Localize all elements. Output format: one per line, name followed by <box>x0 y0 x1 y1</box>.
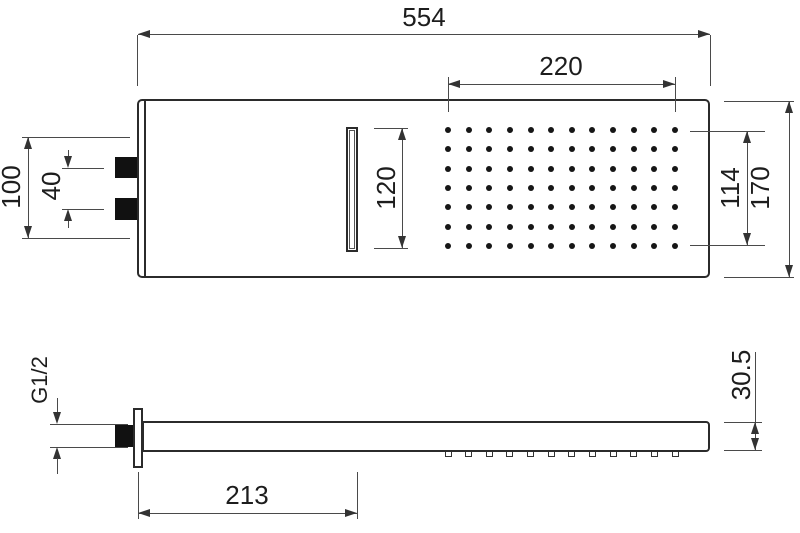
spray-dot <box>466 166 472 172</box>
arrowhead-left <box>138 30 150 38</box>
arrowhead-right <box>663 80 675 88</box>
dimension-stub <box>57 398 58 413</box>
spray-dot <box>631 243 637 249</box>
dimension-line <box>28 137 29 238</box>
extension-line <box>357 472 358 519</box>
nozzle <box>548 452 555 457</box>
arrowhead-left <box>138 509 150 517</box>
extension-line <box>724 101 794 102</box>
extension-line <box>724 277 794 278</box>
spray-dot <box>466 204 472 210</box>
spray-dot <box>528 185 534 191</box>
arrowhead-down <box>64 156 72 168</box>
nozzle <box>568 452 575 457</box>
dimension-line <box>402 128 403 248</box>
nozzle <box>527 452 534 457</box>
spray-dot <box>486 166 492 172</box>
spray-dot <box>528 243 534 249</box>
arrowhead-up <box>751 422 759 434</box>
arrowhead-left <box>448 80 460 88</box>
spray-dot <box>569 127 575 133</box>
spray-dot <box>445 224 451 230</box>
shower-head-side-profile <box>142 421 710 452</box>
nozzle <box>610 452 617 457</box>
spray-dot <box>569 166 575 172</box>
spray-dot <box>528 166 534 172</box>
dim-label-spray-field-width: 220 <box>539 53 582 79</box>
spray-dot <box>672 243 678 249</box>
spray-dot <box>445 243 451 249</box>
spray-dot <box>507 185 513 191</box>
spray-dot <box>528 224 534 230</box>
spray-dot <box>466 185 472 191</box>
inlet-connector-top-2 <box>115 198 137 220</box>
nozzle <box>465 452 472 457</box>
nozzle <box>506 452 513 457</box>
wall-flange <box>133 408 143 468</box>
extension-line <box>50 424 128 425</box>
dimension-stub <box>57 458 58 474</box>
spray-dot <box>445 127 451 133</box>
inlet-connector-side <box>115 425 133 447</box>
extension-line <box>50 447 128 448</box>
dimension-stub <box>68 221 69 228</box>
extension-line <box>710 35 711 86</box>
dimension-line <box>138 34 710 35</box>
waterfall-slot <box>346 127 358 252</box>
extension-line <box>724 450 762 451</box>
dimension-line <box>789 101 790 277</box>
spray-dot <box>631 224 637 230</box>
spray-dot <box>569 185 575 191</box>
dim-label-inlet-spacing: 40 <box>38 172 64 201</box>
dim-label-slot-length: 120 <box>373 166 399 209</box>
mounting-plate-edge-line <box>144 101 146 276</box>
arrowhead-up <box>398 128 406 140</box>
dim-label-head-height: 170 <box>747 166 773 209</box>
spray-dot <box>610 224 616 230</box>
arrowhead-right <box>345 509 357 517</box>
dim-label-head-thickness: 30.5 <box>728 350 754 401</box>
spray-dot <box>610 166 616 172</box>
arrowhead-up <box>24 137 32 149</box>
extension-line <box>62 168 104 169</box>
extension-line <box>675 77 676 112</box>
spray-dot <box>507 166 513 172</box>
dim-label-spray-field-height: 114 <box>717 167 743 208</box>
nozzle <box>589 452 596 457</box>
spray-dot <box>445 166 451 172</box>
spray-dot <box>569 243 575 249</box>
spray-dot <box>631 127 637 133</box>
spray-dot <box>548 166 554 172</box>
spray-dot <box>672 166 678 172</box>
arrowhead-up <box>785 101 793 113</box>
arrowhead-up <box>64 209 72 221</box>
arrowhead-down <box>751 438 759 450</box>
shower-head-body-outline <box>137 99 710 278</box>
arrowhead-down <box>785 265 793 277</box>
nozzle <box>445 452 452 457</box>
extension-line <box>690 131 765 132</box>
spray-dot <box>528 127 534 133</box>
arrowhead-up <box>743 131 751 143</box>
spray-dot <box>672 224 678 230</box>
technical-drawing-canvas: 554 220 120 114 170 <box>0 0 800 533</box>
spray-dot <box>548 224 554 230</box>
nozzle <box>651 452 658 457</box>
spray-dot <box>507 243 513 249</box>
arrowhead-right <box>698 30 710 38</box>
spray-dot <box>466 224 472 230</box>
extension-line <box>137 35 138 86</box>
spray-dot <box>486 224 492 230</box>
inlet-connector-top-1 <box>115 157 137 178</box>
dim-label-thread-size: G1/2 <box>29 356 51 404</box>
dim-label-arm-length: 213 <box>225 482 268 508</box>
nozzle <box>630 452 637 457</box>
dimension-line <box>138 513 357 514</box>
spray-dot <box>631 166 637 172</box>
waterfall-slot-inner-line <box>349 130 355 249</box>
extension-line <box>690 245 765 246</box>
arrowhead-down <box>53 412 61 424</box>
arrowhead-down <box>398 236 406 248</box>
spray-dot <box>466 243 472 249</box>
arrowhead-down <box>24 226 32 238</box>
nozzle <box>486 452 493 457</box>
spray-dot <box>672 127 678 133</box>
spray-dot <box>466 127 472 133</box>
extension-line <box>374 248 408 249</box>
dim-label-overall-width: 554 <box>402 4 445 30</box>
spray-dot <box>507 127 513 133</box>
extension-line <box>22 238 130 239</box>
nozzle <box>672 452 679 457</box>
spray-dot <box>507 224 513 230</box>
spray-dot <box>569 224 575 230</box>
spray-dot <box>466 146 472 152</box>
spray-dot <box>445 185 451 191</box>
arrowhead-down <box>743 233 751 245</box>
dimension-line <box>448 84 675 85</box>
spray-dot <box>528 204 534 210</box>
extension-line <box>22 137 130 138</box>
spray-dot <box>631 185 637 191</box>
spray-dot <box>528 146 534 152</box>
spray-dot <box>672 185 678 191</box>
dim-label-mounting-height: 100 <box>0 165 24 208</box>
